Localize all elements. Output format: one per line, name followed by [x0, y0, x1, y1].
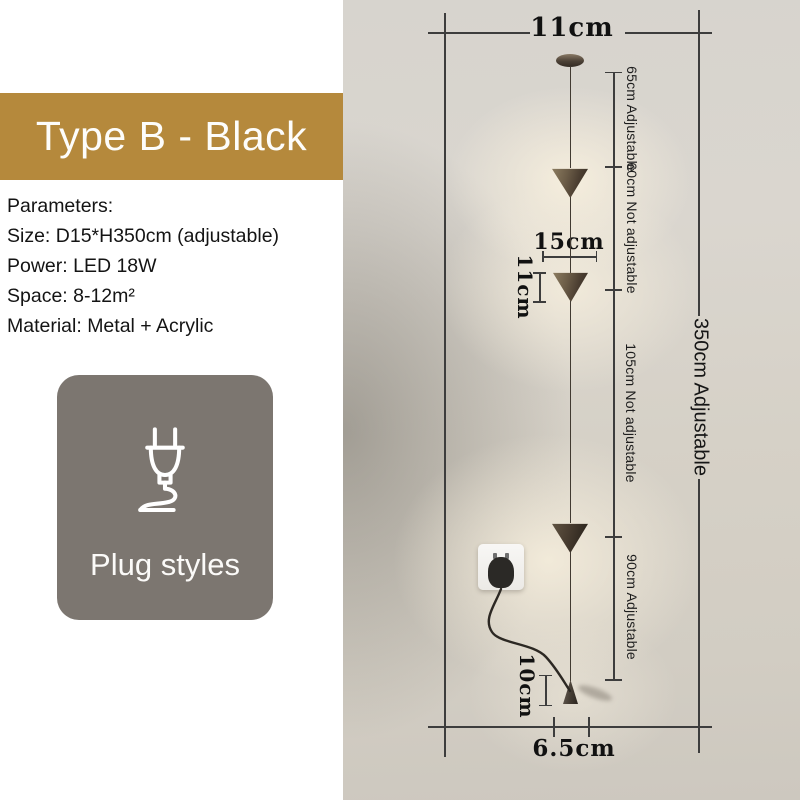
segment-90cm-label: 90cm Adjustable — [624, 554, 640, 660]
param-space: Space: 8-12m² — [7, 281, 279, 311]
canopy-width-label: 11cm — [492, 13, 652, 43]
guide-line-right-lower — [698, 479, 700, 753]
guide-line-right-upper — [698, 10, 700, 316]
param-size: Size: D15*H350cm (adjustable) — [7, 221, 279, 251]
segment-dim-line — [613, 72, 615, 680]
segment-105cm-label: 105cm Not adjustable — [623, 343, 639, 482]
segment-tick-1 — [605, 72, 622, 74]
segment-60cm-label: 60cm Not adjustable — [624, 162, 640, 293]
segment-tick-3 — [605, 289, 622, 291]
variant-banner: Type B - Black — [0, 93, 343, 180]
variant-label: Type B - Black — [36, 113, 307, 160]
floor-line — [428, 726, 712, 728]
base-tick-right — [588, 717, 590, 737]
plug-icon — [127, 409, 203, 537]
shade-height-tick-bottom — [533, 301, 546, 303]
param-power: Power: LED 18W — [7, 251, 279, 281]
parameters-block: Parameters: Size: D15*H350cm (adjustable… — [7, 191, 279, 341]
shade-spacing-tick-right — [596, 251, 598, 262]
segment-tick-5 — [605, 679, 622, 681]
base-width-label: 6.5cm — [494, 735, 654, 762]
wall-outlet — [478, 544, 524, 590]
lamp-shade-1 — [552, 168, 588, 198]
parameters-title: Parameters: — [7, 191, 279, 221]
lamp-cable-3 — [570, 301, 571, 523]
lamp-cable-2 — [570, 197, 571, 273]
lamp-cable-1 — [570, 66, 571, 168]
shade-height-tick-top — [533, 272, 546, 274]
shade-height-line — [539, 272, 541, 302]
power-cord — [473, 585, 583, 700]
power-plug — [488, 557, 514, 588]
shade-spacing-line — [542, 256, 596, 258]
lamp-shade-3 — [552, 523, 588, 553]
segment-tick-2 — [605, 166, 622, 168]
base-tick-left — [553, 717, 555, 737]
plug-styles-label: Plug styles — [90, 547, 240, 583]
lamp-shade-2 — [553, 272, 588, 302]
segment-tick-4 — [605, 536, 622, 538]
param-material: Material: Metal + Acrylic — [7, 311, 279, 341]
total-height-label: 350cm Adjustable — [689, 318, 712, 476]
info-panel: Type B - Black Parameters: Size: D15*H35… — [0, 0, 343, 800]
product-photo: 11cm 6.5cm 65cm Adjustable 60cm Not adju… — [343, 0, 800, 800]
guide-line-left — [444, 13, 446, 757]
plug-styles-card: Plug styles — [57, 375, 273, 620]
shade-spacing-label: 15cm — [489, 229, 649, 255]
floor-spike-tick-bottom — [539, 705, 552, 707]
shade-height-label: 11cm — [513, 254, 537, 319]
segment-65cm-label: 65cm Adjustable — [624, 66, 640, 172]
product-infographic: Type B - Black Parameters: Size: D15*H35… — [0, 0, 800, 800]
shade-spacing-tick-left — [542, 251, 544, 262]
